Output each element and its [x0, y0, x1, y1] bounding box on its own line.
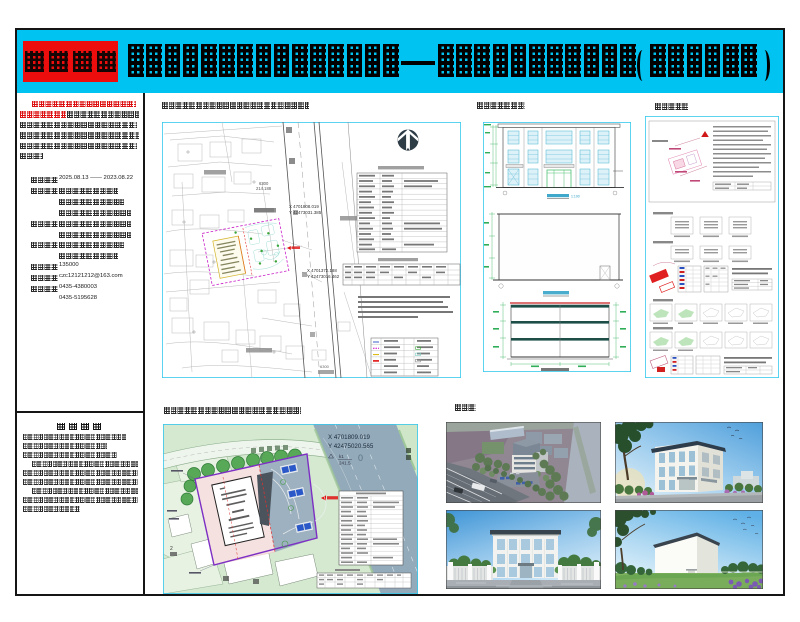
svg-text:0: 0 — [358, 453, 363, 463]
svg-text:2: 2 — [170, 546, 173, 552]
svg-text:6300: 6300 — [320, 364, 330, 369]
svg-text:Y 42473031.385: Y 42473031.385 — [289, 210, 322, 215]
svg-text:Y 42473016.462: Y 42473016.462 — [307, 274, 340, 279]
svg-text:1:100: 1:100 — [571, 194, 580, 198]
svg-text:Y 42475020.565: Y 42475020.565 — [328, 443, 374, 450]
svg-text:241.5: 241.5 — [339, 461, 351, 466]
svg-text:X 4701809.019: X 4701809.019 — [328, 434, 371, 441]
svg-text:214.188: 214.188 — [256, 186, 272, 191]
svg-text:X 4701808.019: X 4701808.019 — [289, 204, 319, 209]
svg-text:X 4701372.188: X 4701372.188 — [307, 268, 337, 273]
svg-text:k1: k1 — [339, 454, 344, 459]
